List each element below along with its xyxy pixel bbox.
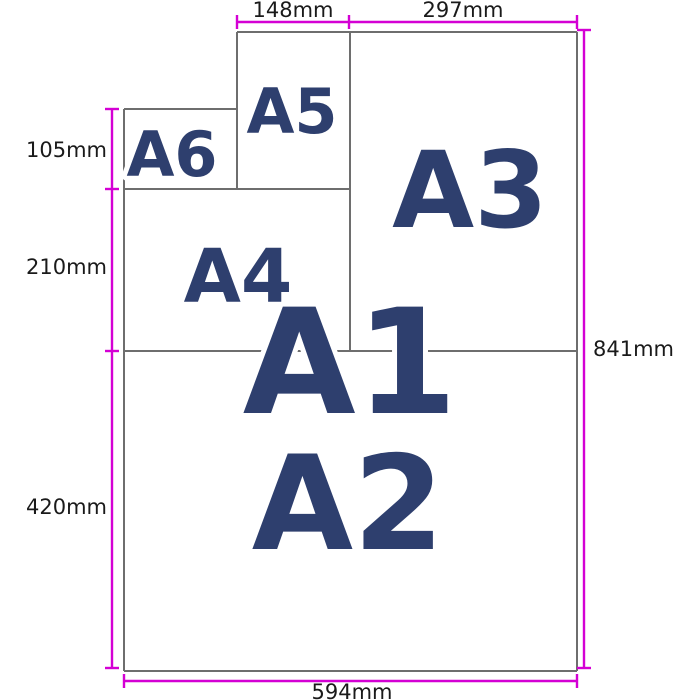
paper-sizes-diagram: 148mm 297mm 105mm 210mm 420mm 841mm 594m… <box>0 0 700 700</box>
dimension-bottom: 594mm <box>124 674 577 700</box>
label-a6: A6 <box>126 118 217 191</box>
label-a2: A2 <box>252 427 445 580</box>
dimension-left: 105mm 210mm 420mm <box>26 109 119 668</box>
label-a3: A3 <box>392 129 548 252</box>
label-a5: A5 <box>246 75 337 148</box>
paper-labels: A6 A5 A4 A3 A1 A2 <box>126 75 547 580</box>
dimension-right: 841mm <box>577 30 674 668</box>
dim-label-297mm: 297mm <box>423 0 504 22</box>
dimension-top: 148mm 297mm <box>237 0 577 29</box>
dim-label-105mm: 105mm <box>26 138 107 162</box>
dim-label-210mm: 210mm <box>26 255 107 279</box>
dim-label-594mm: 594mm <box>312 680 393 700</box>
dim-label-148mm: 148mm <box>253 0 334 22</box>
dim-label-841mm: 841mm <box>593 337 674 361</box>
label-a1: A1 <box>243 278 458 448</box>
dim-label-420mm: 420mm <box>26 495 107 519</box>
